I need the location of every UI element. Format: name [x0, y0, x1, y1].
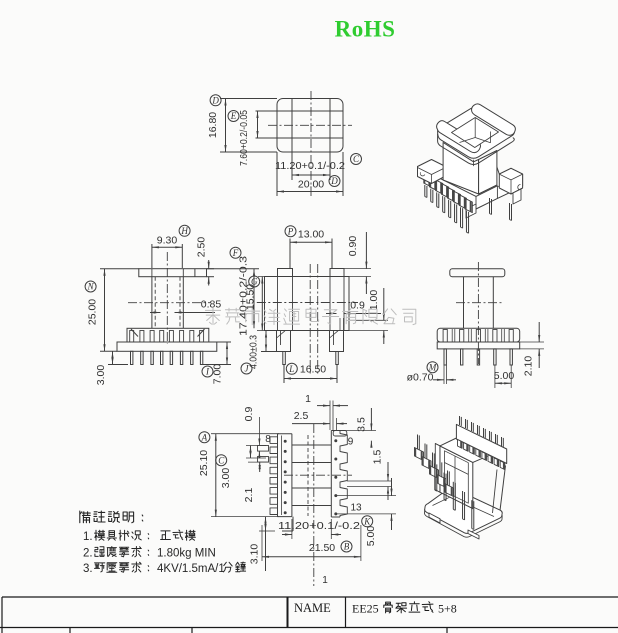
svg-text:21.50: 21.50 [309, 542, 335, 554]
svg-text:4KV/1.5mA/1: 4KV/1.5mA/1 [157, 563, 225, 575]
svg-text:5.00: 5.00 [365, 526, 377, 547]
svg-text:16.80: 16.80 [207, 112, 219, 138]
svg-text:NAME: NAME [294, 601, 331, 615]
svg-text:7.00: 7.00 [212, 364, 224, 385]
svg-text:G: G [251, 277, 258, 287]
svg-text:2.5: 2.5 [294, 410, 309, 422]
svg-text:RoHS: RoHS [335, 17, 396, 42]
svg-text:2.10: 2.10 [523, 356, 535, 377]
svg-text:E: E [230, 111, 237, 121]
svg-text:P: P [287, 226, 294, 236]
svg-text:3.: 3. [83, 563, 93, 575]
svg-text:3.00: 3.00 [95, 365, 107, 386]
svg-text:3.5: 3.5 [356, 417, 368, 432]
svg-text:L: L [288, 364, 294, 374]
svg-text:9: 9 [348, 437, 354, 448]
svg-text:5.00: 5.00 [494, 370, 515, 382]
svg-text:7.60+0.2/-0.05: 7.60+0.2/-0.05 [239, 110, 250, 166]
svg-text:K: K [363, 517, 371, 527]
svg-text:9.30: 9.30 [157, 235, 178, 247]
svg-text:1.80kg MIN: 1.80kg MIN [157, 548, 216, 560]
svg-text:D: D [330, 176, 338, 186]
svg-text:C: C [218, 455, 225, 465]
svg-text:A: A [201, 432, 208, 442]
svg-text:8: 8 [265, 434, 271, 445]
svg-text:D: D [211, 96, 219, 106]
svg-text:H: H [180, 226, 188, 236]
svg-text:N: N [87, 282, 95, 292]
svg-text:2.50: 2.50 [196, 237, 208, 258]
svg-text:25.10: 25.10 [198, 450, 210, 476]
svg-text:1.5: 1.5 [372, 450, 384, 465]
svg-text:2.: 2. [83, 548, 93, 560]
svg-text:0.85: 0.85 [201, 299, 222, 311]
svg-text:0.9: 0.9 [243, 407, 255, 422]
svg-text:13: 13 [350, 503, 362, 514]
svg-text:M: M [428, 362, 437, 372]
svg-text:15.50: 15.50 [245, 284, 257, 310]
svg-text:1.00: 1.00 [368, 290, 380, 311]
svg-text:1: 1 [322, 575, 328, 586]
svg-text:1.: 1. [83, 531, 93, 543]
svg-text:F: F [232, 248, 239, 258]
svg-text:11.20+0.1/-0.2: 11.20+0.1/-0.2 [275, 160, 345, 172]
svg-text:0.90: 0.90 [347, 236, 359, 257]
svg-text:3.10: 3.10 [249, 544, 261, 565]
svg-text:5+8: 5+8 [438, 602, 457, 616]
svg-text:EE25: EE25 [352, 602, 379, 616]
svg-text:25.00: 25.00 [87, 299, 99, 325]
svg-text:2.1: 2.1 [243, 488, 255, 503]
svg-text:C: C [353, 154, 360, 164]
svg-text:11.20+0.1/-0.2: 11.20+0.1/-0.2 [278, 520, 360, 532]
svg-text:20.00: 20.00 [298, 179, 324, 191]
svg-text:B: B [344, 542, 350, 552]
svg-text:16.50: 16.50 [300, 364, 326, 376]
svg-text:ø0.70: ø0.70 [407, 372, 434, 384]
svg-text:1: 1 [305, 393, 311, 405]
svg-text:13.00: 13.00 [298, 229, 324, 241]
svg-text:3.00: 3.00 [220, 468, 232, 489]
